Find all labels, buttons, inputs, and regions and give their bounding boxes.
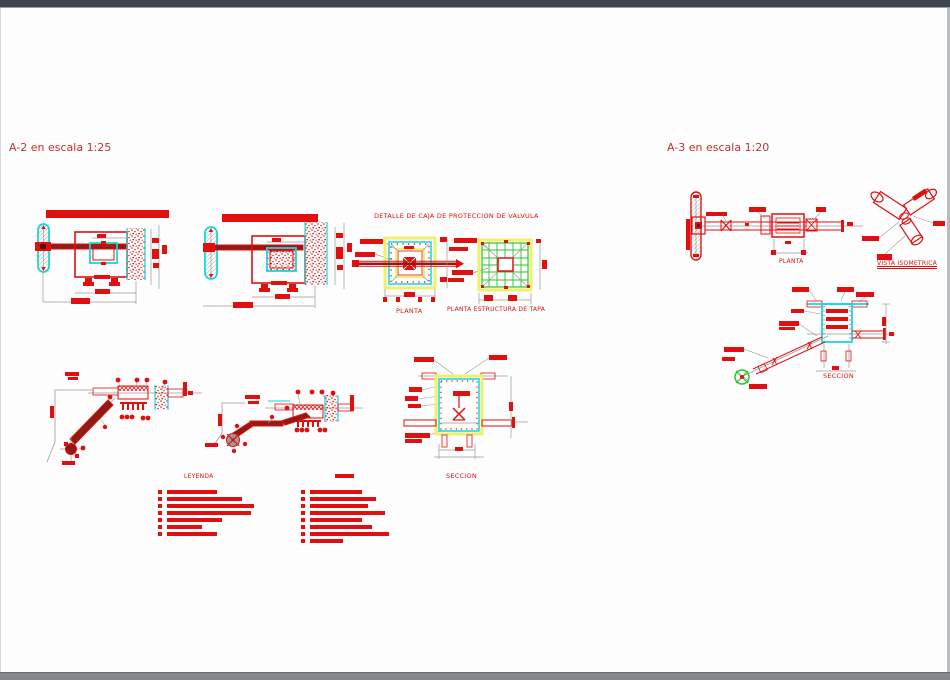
dimension-bracket (770, 239, 808, 255)
seccion-mid-label: SECCION (446, 472, 477, 480)
pipe-section-drawing-2 (205, 373, 365, 468)
legend-text-bar (310, 497, 376, 501)
legend-item (158, 530, 254, 537)
legend-text-bar (167, 497, 242, 501)
legend-bullet (301, 504, 305, 508)
legend-text-bar (310, 532, 389, 536)
legend-left-column (158, 488, 254, 537)
legend-bullet (158, 504, 162, 508)
legend-item (301, 509, 389, 516)
a3-planta-label: PLANTA (779, 258, 804, 265)
legend-bullet (158, 532, 162, 536)
a2-plan-drawing-2 (203, 205, 363, 310)
legs-and-dimensions (816, 344, 856, 371)
legend-item (301, 502, 389, 509)
legend-item (158, 488, 254, 495)
title-bar (46, 210, 169, 218)
title-a3-scale: A-3 en escala 1:20 (667, 141, 769, 154)
legend-text-bar (310, 490, 362, 494)
legend-item (158, 516, 254, 523)
hydrant-capsule (205, 227, 217, 279)
legend-text-bar (167, 525, 202, 529)
legend-bullet (301, 511, 305, 515)
legs-and-dimensions (434, 376, 513, 459)
a2-plan-drawing-1 (35, 205, 205, 310)
legend-bullet (158, 511, 162, 515)
concrete-stipple-wall (305, 222, 327, 285)
legend-text-bar (310, 518, 362, 522)
window-frame-bottom (0, 672, 950, 680)
concrete-stipple-wall (127, 228, 145, 280)
flange (761, 216, 770, 234)
legend-item (158, 495, 254, 502)
legend-text-bar (310, 539, 343, 543)
legend-bullet (158, 518, 162, 522)
legend-right-header-bar (335, 474, 354, 478)
legend-text-bar (167, 518, 222, 522)
legend-bullet (301, 518, 305, 522)
pipe-through (404, 417, 528, 428)
valve-box-plan (75, 232, 127, 277)
riser-pipe-diagonal (65, 398, 115, 450)
legend-item (301, 537, 389, 544)
legend-right-column (301, 488, 389, 544)
tapa-structure-drawing (448, 232, 556, 310)
legend-item (158, 523, 254, 530)
legend-title: LEYENDA (184, 473, 213, 480)
legend-bullet (301, 497, 305, 501)
legend-item (301, 495, 389, 502)
legend-item (158, 509, 254, 516)
seccion-detail-drawing (403, 352, 538, 480)
legend-text-bar (167, 511, 251, 515)
legend-bullet (301, 490, 305, 494)
cad-sheet-viewport: A-2 en escala 1:25 A-3 en escala 1:20 DE… (0, 0, 950, 680)
legend-bullet (158, 490, 162, 494)
vista-isometrica-drawing (855, 178, 950, 270)
legend-bullet (158, 497, 162, 501)
legend-item (158, 502, 254, 509)
legend-bullet (301, 532, 305, 536)
legend-text-bar (310, 511, 385, 515)
pipe-section-drawing-1 (40, 358, 208, 470)
valve-symbol (453, 396, 465, 420)
legend-item (301, 488, 389, 495)
lid-structure (479, 240, 531, 290)
valve-body (772, 214, 804, 237)
leader-labels (405, 355, 507, 443)
riser-pipe-diagonal (743, 336, 828, 376)
legend-item (301, 530, 389, 537)
a3-seccion-drawing (713, 278, 898, 400)
legend-item (301, 516, 389, 523)
legend-bullet (301, 525, 305, 529)
vista-isometrica-label: VISTA ISOMETRICA (877, 260, 937, 269)
a3-planta-drawing (673, 178, 868, 270)
legend-text-bar (167, 504, 254, 508)
planta-label: PLANTA (396, 307, 422, 315)
valve-box-plan (252, 236, 305, 283)
a3-seccion-label: SECCION (823, 372, 854, 380)
valve-wheel (735, 370, 749, 384)
window-frame-top (0, 0, 950, 8)
title-bar (222, 214, 318, 222)
planta-estructura-label: PLANTA ESTRUCTURA DE TAPA (447, 306, 545, 313)
legend-text-bar (167, 532, 217, 536)
legend-item (301, 523, 389, 530)
detail-box-title: DETALLE DE CAJA DE PROTECCION DE VALVULA (374, 212, 539, 220)
legend-bullet (301, 539, 305, 543)
legend-text-bar (310, 525, 372, 529)
legend-text-bar (167, 490, 217, 494)
legend-text-bar (310, 504, 368, 508)
legend-bullet (158, 525, 162, 529)
title-a2-scale: A-2 en escala 1:25 (9, 141, 111, 154)
